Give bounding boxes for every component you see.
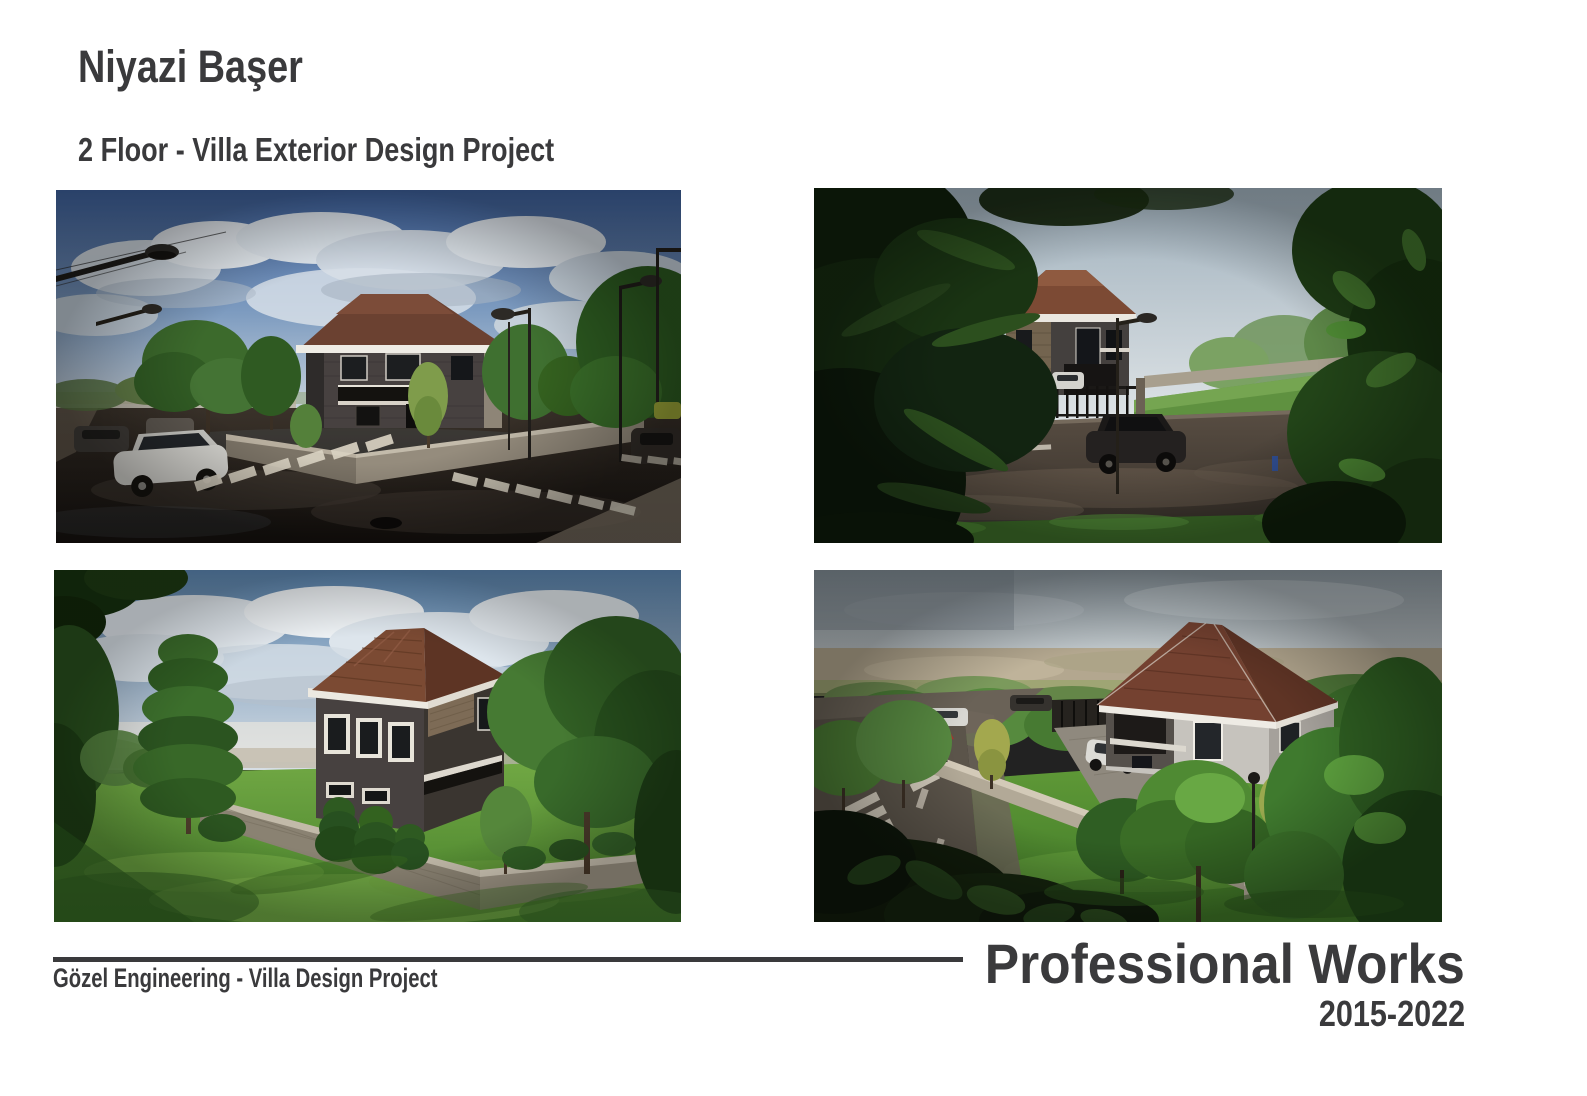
render-garden-view <box>54 570 681 922</box>
render-framed-view <box>814 188 1442 543</box>
page-title: Niyazi Başer <box>78 42 303 92</box>
divider-line <box>53 957 963 962</box>
render-aerial-view <box>814 570 1442 922</box>
footer-company: Gözel Engineering - Villa Design Project <box>53 964 437 994</box>
works-years: 2015-2022 <box>1319 994 1465 1034</box>
works-title: Professional Works <box>985 933 1465 995</box>
aerial-view-illustration <box>814 570 1442 922</box>
framed-view-illustration <box>814 188 1442 543</box>
project-title: 2 Floor - Villa Exterior Design Project <box>78 132 554 168</box>
garden-view-illustration <box>54 570 681 922</box>
render-street-view <box>56 190 681 543</box>
portfolio-page: Niyazi Başer 2 Floor - Villa Exterior De… <box>0 0 1587 1096</box>
street-view-illustration <box>56 190 681 543</box>
